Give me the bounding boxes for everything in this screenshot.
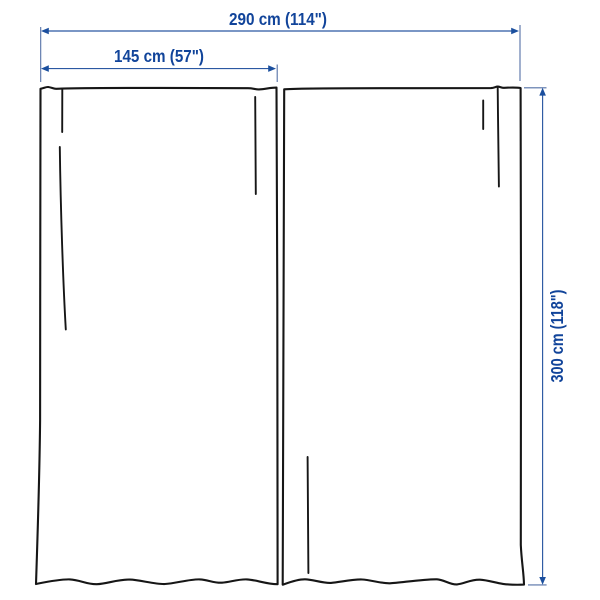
svg-text:145 cm (57"): 145 cm (57") (114, 46, 204, 66)
svg-text:290 cm (114"): 290 cm (114") (229, 9, 327, 29)
svg-text:300 cm (118"): 300 cm (118") (547, 290, 567, 383)
